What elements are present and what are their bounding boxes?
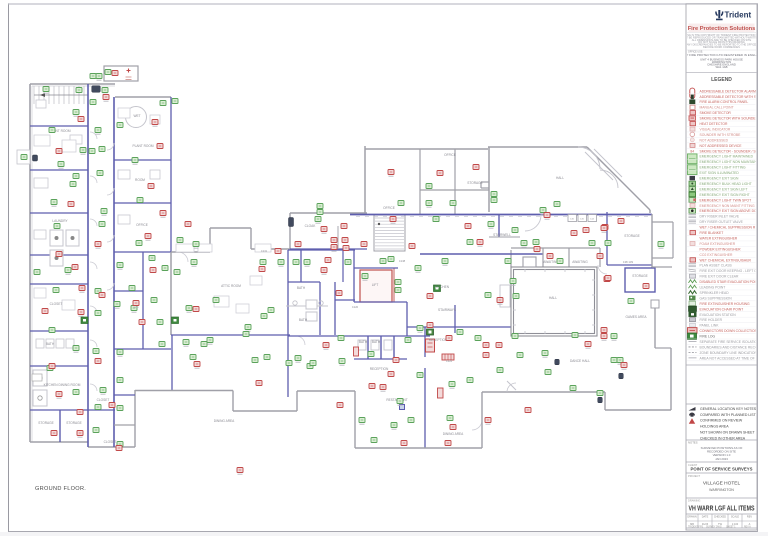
svg-text:MANUAL CALL POINT: MANUAL CALL POINT	[700, 106, 734, 110]
svg-text:EMERGENCY LIGHT TWIN SPOT: EMERGENCY LIGHT TWIN SPOT	[700, 198, 752, 202]
svg-text:DATE: DATE	[702, 516, 709, 519]
svg-text:SMOKE DETECTOR WITH SOUNDER AN: SMOKE DETECTOR WITH SOUNDER AND BASE	[700, 117, 768, 121]
svg-text:LEGEND: LEGEND	[711, 77, 732, 83]
svg-text:TRIDENT FPS: TRIDENT FPS	[688, 526, 703, 528]
svg-text:WATER EXTINGUISHER: WATER EXTINGUISHER	[700, 236, 738, 240]
svg-text:POWDER EXTINGUISHER: POWDER EXTINGUISHER	[700, 247, 742, 251]
svg-text:VH WARR LGF ALL ITEMS: VH WARR LGF ALL ITEMS	[689, 506, 755, 513]
svg-text:FIRE HOLDER: FIRE HOLDER	[700, 318, 723, 322]
svg-text:NOT SHOWN ON DRAWN SHEET: NOT SHOWN ON DRAWN SHEET	[700, 431, 756, 435]
svg-text:FOAM EXTINGUISHER: FOAM EXTINGUISHER	[700, 242, 736, 246]
svg-text:EMERGENCY NON MAINT FITTING: EMERGENCY NON MAINT FITTING	[700, 204, 755, 208]
svg-text:WET CHEMICAL EXTINGUISHER: WET CHEMICAL EXTINGUISHER	[700, 258, 752, 262]
svg-text:ZONE BOUNDARY LINE INDICATION: ZONE BOUNDARY LINE INDICATION	[700, 351, 758, 355]
svg-text:HEAT DETECTOR: HEAT DETECTOR	[700, 122, 728, 126]
svg-text:WET / CHEMICAL SUPPRESSION REL: WET / CHEMICAL SUPPRESSION RELEASE	[700, 226, 768, 230]
svg-text:BEFORE WORK COMMENCES: BEFORE WORK COMMENCES	[703, 45, 740, 49]
svg-text:NOT ADDRESSED DEVICE: NOT ADDRESSED DEVICE	[700, 144, 743, 148]
svg-text:EMERGENCY EXIT SIGN ABOVE DOOR: EMERGENCY EXIT SIGN ABOVE DOOR	[700, 209, 763, 213]
svg-text:Fire Protection Solutions: Fire Protection Solutions	[688, 26, 756, 32]
svg-text:84: 84	[690, 149, 694, 153]
svg-text:VILLAGE HOTEL: VILLAGE HOTEL	[703, 481, 741, 487]
svg-text:LEADING POINT: LEADING POINT	[700, 286, 726, 290]
svg-text:DRAWING: DRAWING	[688, 499, 700, 503]
svg-text:SMOKE DETECTOR: SMOKE DETECTOR	[700, 111, 732, 115]
svg-text:AREA NOT ACCESSED AT TIME OF S: AREA NOT ACCESSED AT TIME OF SURVEY	[700, 356, 768, 360]
svg-text:TRIDENT FIRE PROTECTION LTD RE: TRIDENT FIRE PROTECTION LTD REGISTERED I…	[675, 53, 768, 57]
svg-text:GAS SUPPRESSION: GAS SUPPRESSION	[700, 296, 733, 300]
svg-text:VISUAL INDICATOR: VISUAL INDICATOR	[700, 127, 731, 131]
svg-text:ADDRESSABLE DETECTOR WITH SOUN: ADDRESSABLE DETECTOR WITH SOUNDER BASE	[700, 95, 768, 99]
svg-text:EMERGENCY LIGHT MAINTAINED: EMERGENCY LIGHT MAINTAINED	[700, 155, 754, 159]
svg-text:BOUNDARIES AND DISTANCE RECORD: BOUNDARIES AND DISTANCE RECORD SHOWN	[700, 345, 768, 349]
svg-text:Trident: Trident	[725, 11, 752, 20]
svg-text:GENERAL LOCATION KEY NOTES: GENERAL LOCATION KEY NOTES	[700, 407, 757, 411]
svg-text:PROJECT: PROJECT	[688, 474, 701, 478]
svg-text:SHEET 1: SHEET 1	[726, 526, 736, 528]
svg-text:EMERGENCY EXIT SIGN: EMERGENCY EXIT SIGN	[700, 177, 739, 181]
svg-text:FIRE EXIT DOOR KEEPING - LEFT: FIRE EXIT DOOR KEEPING - LEFT CLOSED	[700, 269, 768, 273]
svg-text:FIRE ALARM CONTROL PANEL: FIRE ALARM CONTROL PANEL	[700, 100, 749, 104]
svg-text:EMERGENCY EXIT SIGN LEFT: EMERGENCY EXIT SIGN LEFT	[700, 187, 748, 191]
svg-text:SCALE: SCALE	[731, 516, 740, 519]
svg-text:FIRE EXTINGUISHER HOUSING: FIRE EXTINGUISHER HOUSING	[700, 302, 751, 306]
svg-text:SMOKE DETECTOR - SOUNDER / STR: SMOKE DETECTOR - SOUNDER / STROBE	[700, 149, 768, 153]
svg-text:HOLDINGS AREA: HOLDINGS AREA	[700, 425, 729, 429]
svg-text:PANEL LINK: PANEL LINK	[700, 324, 720, 328]
svg-text:DRAWN: DRAWN	[687, 516, 697, 519]
svg-text:CO2 EXTINGUISHER: CO2 EXTINGUISHER	[700, 253, 733, 257]
svg-text:ADDRESSABLE DETECTOR ALARM SOU: ADDRESSABLE DETECTOR ALARM SOUNDER COMB	[700, 89, 768, 93]
svg-text:CONFIRMED ON REVIEW: CONFIRMED ON REVIEW	[700, 419, 743, 423]
svg-text:EVACUATION CHAIR POINT: EVACUATION CHAIR POINT	[700, 307, 744, 311]
svg-text:REV: REV	[747, 516, 752, 519]
svg-text:EMERGENCY LIGHT FITTING: EMERGENCY LIGHT FITTING	[700, 166, 747, 170]
svg-text:EXIT SIGN ILLUMINATED: EXIT SIGN ILLUMINATED	[700, 171, 740, 175]
svg-text:EMERGENCY BULK HEAD LIGHT: EMERGENCY BULK HEAD LIGHT	[700, 182, 752, 186]
svg-text:FIRE EXIT DOOR CLEAR: FIRE EXIT DOOR CLEAR	[700, 275, 740, 279]
svg-text:DISABLED STAIR EVACUATION POIN: DISABLED STAIR EVACUATION POINT	[700, 280, 760, 284]
svg-text:JAN 2023: JAN 2023	[715, 457, 728, 461]
svg-text:PLAN ASSET CLASS: PLAN ASSET CLASS	[700, 264, 733, 268]
svg-text:CONNECTORS DOWN COLLECTION POI: CONNECTORS DOWN COLLECTION POINT	[700, 329, 768, 333]
svg-text:EMERGENCY LIGHT NON MAINTAINED: EMERGENCY LIGHT NON MAINTAINED	[700, 160, 762, 164]
svg-text:FIRE BLANKET: FIRE BLANKET	[700, 231, 724, 235]
svg-text:DRY RISER INLET VALVE: DRY RISER INLET VALVE	[700, 215, 740, 219]
svg-text:DRY RISER OUTLET VALVE: DRY RISER OUTLET VALVE	[700, 220, 744, 224]
svg-text:EVACUATION STATION: EVACUATION STATION	[700, 313, 737, 317]
svg-text:POINT OF SERVICE SURVEYS: POINT OF SERVICE SURVEYS	[691, 467, 753, 472]
svg-text:WARRINGTON: WARRINGTON	[709, 488, 734, 492]
svg-text:WA1 1AB: WA1 1AB	[715, 65, 727, 69]
svg-text:CHECKED IN OTHER AREA: CHECKED IN OTHER AREA	[700, 436, 746, 440]
svg-text:SOUNDER WITH STROBE: SOUNDER WITH STROBE	[700, 133, 742, 137]
svg-text:FIRE LOG: FIRE LOG	[700, 335, 716, 339]
svg-text:NOT ADDRESSED: NOT ADDRESSED	[700, 138, 729, 142]
svg-text:SPRINKLER HEAD: SPRINKLER HEAD	[700, 291, 730, 295]
svg-text:REV A: REV A	[744, 525, 751, 528]
svg-text:CHECKED: CHECKED	[714, 516, 726, 519]
svg-text:SURVEY DWG: SURVEY DWG	[706, 526, 722, 528]
svg-text:COMPARED WITH PLANNED LIST: COMPARED WITH PLANNED LIST	[700, 413, 757, 417]
svg-text:SEPARATE FIRE SERVICE ISOLATIO: SEPARATE FIRE SERVICE ISOLATION DRAWING	[700, 340, 768, 344]
svg-text:NOTES: NOTES	[688, 441, 698, 445]
svg-text:EMERGENCY EXIT SIGN RIGHT: EMERGENCY EXIT SIGN RIGHT	[700, 193, 750, 197]
